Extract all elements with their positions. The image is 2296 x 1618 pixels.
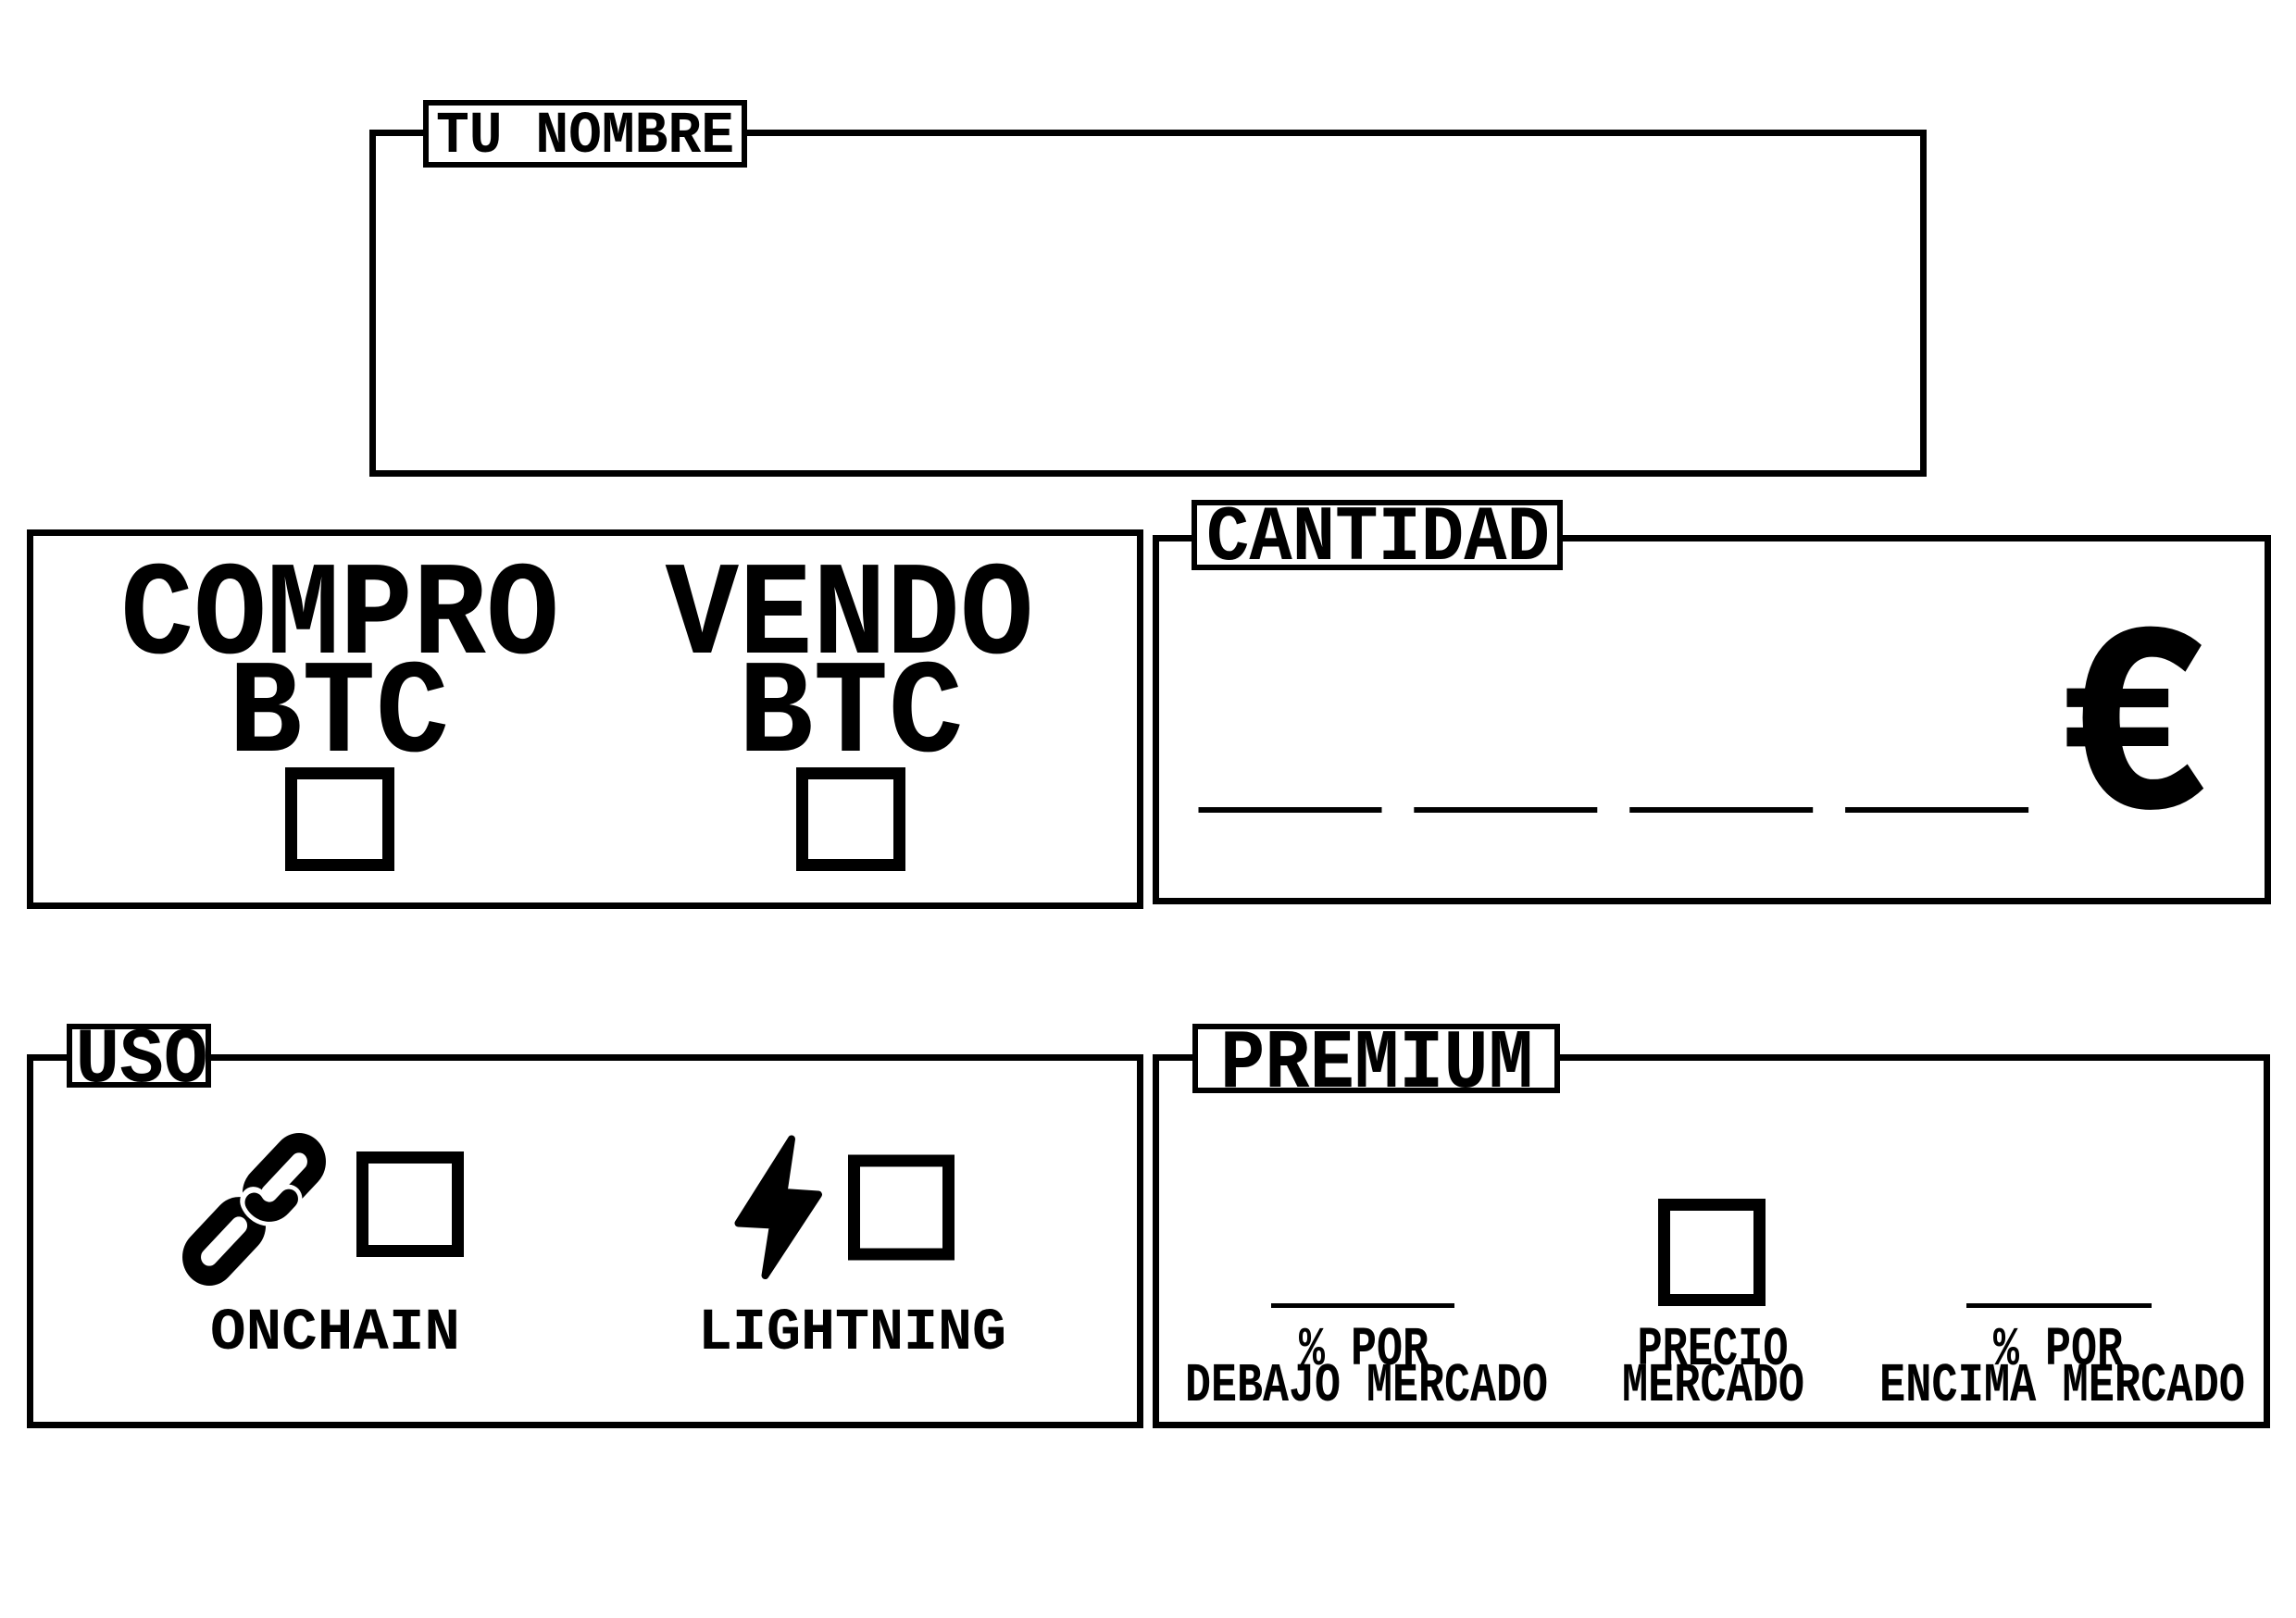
svg-text:MERCADO: MERCADO <box>1622 1355 1804 1417</box>
svg-text:LIGHTNING: LIGHTNING <box>698 1301 1006 1367</box>
svg-text:€: € <box>2058 582 2210 889</box>
svg-text:USO: USO <box>76 1017 208 1105</box>
svg-text:CANTIDAD: CANTIDAD <box>1206 495 1550 583</box>
svg-text:ONCHAIN: ONCHAIN <box>210 1301 460 1367</box>
svg-text:PREMIUM: PREMIUM <box>1220 1017 1533 1113</box>
svg-text:TU NOMBRE: TU NOMBRE <box>436 104 734 170</box>
svg-text:DEBAJO MERCADO: DEBAJO MERCADO <box>1185 1355 1548 1417</box>
svg-text:ENCIMA MERCADO: ENCIMA MERCADO <box>1879 1355 2245 1417</box>
